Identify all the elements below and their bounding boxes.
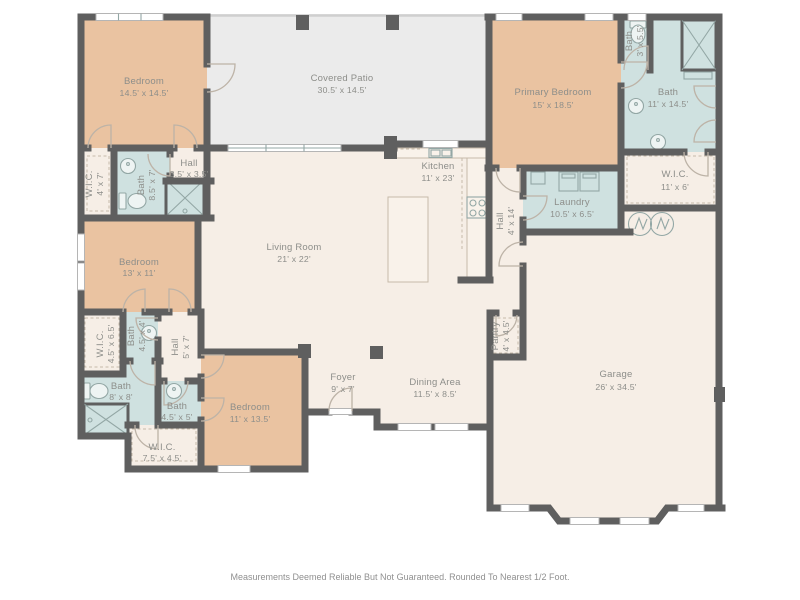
label-bath-primary: Bath: [658, 87, 678, 98]
window: [620, 518, 649, 525]
dims-bath-lower-left: 8' x 8': [109, 392, 133, 402]
dims-wic-mid-left: 4.5' x 6.5': [106, 324, 116, 363]
dims-laundry: 10.5' x 6.5': [550, 209, 594, 219]
label-bath-lower-left: Bath: [111, 381, 131, 392]
garage-wall-nub: [714, 387, 725, 402]
label-bath-top-left: Bath: [136, 175, 147, 195]
sink-icon: [629, 99, 644, 114]
label-bedroom-bottom: Bedroom: [230, 402, 270, 413]
dims-wic-top-left: 4' x 7': [95, 172, 105, 196]
label-primary-bedroom: Primary Bedroom: [515, 87, 592, 98]
window: [96, 14, 163, 21]
label-living-room: Living Room: [266, 242, 321, 253]
label-bath-primary-wc: Bath: [624, 31, 635, 51]
label-laundry: Laundry: [554, 197, 590, 208]
dims-dining-area: 11.5' x 8.5': [413, 389, 456, 399]
dims-hall-lower: 5' x 7': [181, 335, 191, 359]
kitchen-island: [388, 197, 428, 282]
window: [78, 234, 85, 261]
dims-bedroom-bottom: 11' x 13.5': [230, 414, 271, 424]
dims-bedroom-mid-left: 13' x 11': [123, 268, 156, 278]
floor-plan: Bedroom 14.5' x 14.5' Covered Patio 30.5…: [0, 0, 800, 600]
dims-bath-top-left: 8.5' x 7': [147, 169, 157, 200]
label-bath-mid: Bath: [126, 326, 137, 346]
front-door-threshold: [329, 409, 352, 415]
window: [218, 466, 250, 473]
dims-primary-bedroom: 15' x 18.5': [532, 100, 573, 110]
window: [628, 14, 646, 21]
window: [570, 518, 599, 525]
label-bedroom-top-left: Bedroom: [124, 76, 164, 87]
window: [423, 141, 458, 148]
dims-pantry: 4' x 4.5': [501, 320, 511, 351]
window: [78, 263, 85, 290]
patio-post: [386, 15, 399, 30]
dims-living-room: 21' x 22': [277, 254, 311, 264]
dims-wic-lower: 7.5' x 4.5': [143, 453, 182, 463]
kitchen-counter-right: [467, 158, 488, 280]
label-pantry: Pantry: [490, 322, 501, 351]
corner-post: [384, 136, 397, 159]
label-wic-mid-left: W.I.C.: [95, 330, 106, 357]
sink-icon: [167, 384, 182, 399]
dims-covered-patio: 30.5' x 14.5': [318, 85, 367, 95]
floor-plan-page: Bedroom 14.5' x 14.5' Covered Patio 30.5…: [0, 0, 800, 600]
dims-bath-mid: 4.5' x 4': [137, 320, 147, 351]
sink-icon: [651, 135, 666, 150]
label-garage: Garage: [600, 369, 633, 380]
dims-bath-primary: 11' x 14.5': [648, 99, 689, 109]
toilet-tank: [119, 193, 126, 209]
corner-post: [298, 344, 311, 358]
toilet-icon: [90, 384, 108, 399]
patio-post: [296, 15, 309, 30]
dims-foyer: 9' x 7': [331, 384, 355, 394]
sink-icon: [121, 159, 136, 174]
label-hall-primary: Hall: [495, 212, 506, 229]
toilet-tank: [84, 383, 90, 399]
label-bath-lower-mid: Bath: [167, 401, 187, 412]
label-bedroom-mid-left: Bedroom: [119, 257, 159, 268]
window: [435, 424, 468, 431]
dims-hall-primary: 4' x 14': [506, 207, 516, 236]
label-wic-top-left: W.I.C.: [84, 170, 95, 197]
label-dining-area: Dining Area: [409, 377, 461, 388]
label-hall-lower: Hall: [170, 338, 181, 355]
label-wic-lower: W.I.C.: [148, 442, 175, 453]
label-covered-patio: Covered Patio: [311, 73, 374, 84]
dims-garage: 26' x 34.5': [595, 382, 636, 392]
dims-hall-small: 3.5' x 3.5': [170, 169, 209, 179]
window: [398, 424, 431, 431]
window: [496, 14, 522, 21]
window: [678, 505, 704, 512]
window: [585, 14, 613, 21]
dims-bedroom-top-left: 14.5' x 14.5': [120, 88, 169, 98]
label-hall-small: Hall: [180, 158, 197, 169]
label-wic-primary: W.I.C.: [661, 169, 688, 180]
dims-wic-primary: 11' x 6': [661, 182, 689, 192]
dims-bath-lower-mid: 4.5' x 5': [161, 412, 192, 422]
dims-bath-primary-wc: 3' x 5.5': [635, 25, 645, 56]
window: [501, 505, 529, 512]
label-foyer: Foyer: [330, 372, 355, 383]
label-kitchen: Kitchen: [421, 161, 454, 172]
dims-kitchen: 11' x 23': [422, 173, 455, 183]
dining-post: [370, 346, 383, 359]
disclaimer-text: Measurements Deemed Reliable But Not Gua…: [230, 572, 569, 582]
